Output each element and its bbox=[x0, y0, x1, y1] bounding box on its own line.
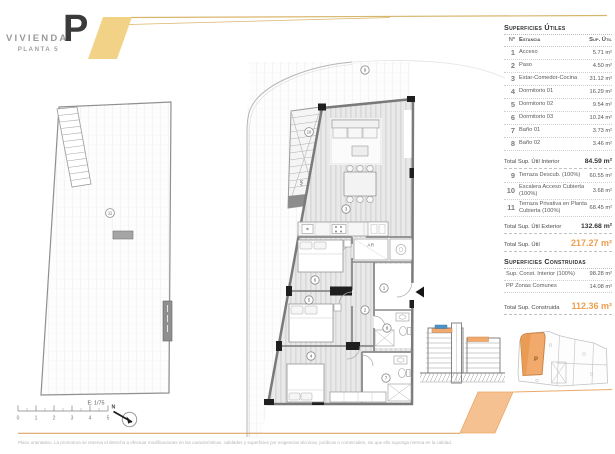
col-room: Estancia bbox=[519, 37, 589, 44]
header: VIVIENDA PLANTA 5 bbox=[6, 33, 59, 53]
scale-tick-label: 4 bbox=[89, 416, 92, 422]
room-marker: 9 bbox=[361, 66, 369, 74]
table-row: 3Estar-Comedor-Cocina31.12 m² bbox=[504, 73, 612, 86]
svg-text:8: 8 bbox=[386, 326, 389, 331]
svg-text:5: 5 bbox=[308, 298, 311, 303]
entrance-arrow bbox=[416, 287, 425, 298]
svg-text:2: 2 bbox=[364, 308, 367, 313]
wardrobe-label: AR bbox=[299, 179, 304, 186]
key-plan: P bbox=[518, 332, 608, 387]
floorplan-sheet: AR bbox=[0, 0, 615, 454]
total-row: Total Sup. Útil 217.27 m² bbox=[504, 235, 612, 252]
scale-tick-label: 3 bbox=[71, 416, 74, 422]
built-surfaces-title: Superficies Construidas bbox=[504, 257, 612, 269]
room-marker: 4 bbox=[307, 352, 315, 360]
room-marker: 6 bbox=[311, 276, 319, 284]
room-marker: 3 bbox=[342, 205, 350, 213]
floor-label: PLANTA 5 bbox=[6, 46, 59, 53]
total-built-value: 112.36 m² bbox=[571, 301, 612, 311]
unit-letter: P bbox=[63, 10, 88, 48]
total-interior-row: Total Sup. Útil Interior 84.59 m² bbox=[504, 155, 612, 169]
bed-dorm3 bbox=[298, 240, 351, 272]
col-num: Nº bbox=[504, 37, 519, 44]
room-marker: 5 bbox=[305, 296, 313, 304]
north-label: N bbox=[112, 405, 116, 411]
table-row: PP Zonas Comunes14.08 m² bbox=[504, 281, 612, 293]
total-built-row: Total Sup. Construida 112.36 m² bbox=[504, 298, 612, 315]
col-area: Sup. Útil bbox=[589, 37, 612, 44]
table-row: 10Escalera Acceso Cubierta (100%)3.68 m² bbox=[504, 183, 612, 200]
kitchen bbox=[298, 222, 388, 236]
svg-text:9: 9 bbox=[364, 68, 367, 73]
roof-side-label-bar bbox=[163, 301, 172, 341]
total-built-label: Total Sup. Construida bbox=[504, 305, 559, 311]
surfaces-panel: Superficies Útiles Nº Estancia Sup. Útil… bbox=[504, 23, 612, 316]
total-exterior-label: Total Sup. Útil Exterior bbox=[504, 224, 561, 230]
table-row: 8Baño 023.46 m² bbox=[504, 138, 612, 151]
section-roof-element bbox=[435, 325, 447, 329]
table-row: Sup. Const. Interior (100%)98.28 m² bbox=[504, 269, 612, 281]
brand-title: VIVIENDA bbox=[6, 33, 59, 44]
table-row: 2Paso4.50 m² bbox=[504, 60, 612, 73]
room-marker: 2 bbox=[361, 306, 369, 314]
room-marker: 10 bbox=[305, 128, 314, 137]
bed-dorm2 bbox=[289, 304, 341, 342]
total-value: 217.27 m² bbox=[571, 238, 612, 248]
total-exterior-row: Total Sup. Útil Exterior 132.68 m² bbox=[504, 220, 612, 234]
svg-text:10: 10 bbox=[307, 130, 312, 135]
svg-text:3: 3 bbox=[345, 207, 348, 212]
table-header: Nº Estancia Sup. Útil bbox=[504, 35, 612, 47]
scale-tick-label: 5 bbox=[107, 416, 110, 422]
svg-text:11: 11 bbox=[108, 211, 113, 216]
svg-text:4: 4 bbox=[310, 354, 313, 359]
scale-tick-label: 0 bbox=[17, 416, 20, 422]
building-section bbox=[420, 323, 505, 383]
sofa bbox=[331, 119, 381, 164]
table-row: 4Dormitorio 0116.29 m² bbox=[504, 86, 612, 99]
total-label: Total Sup. Útil bbox=[504, 242, 540, 248]
scale-tick-label: 1 bbox=[35, 416, 38, 422]
scale-label: E: 1/75 bbox=[87, 401, 104, 407]
roof-plan bbox=[41, 102, 172, 395]
table-row: 5Dormitorio 029.54 m² bbox=[504, 99, 612, 112]
svg-text:1: 1 bbox=[383, 286, 386, 291]
room-marker: 8 bbox=[383, 324, 391, 332]
roof-hatch-access bbox=[113, 231, 133, 239]
scale-tick-label: 2 bbox=[53, 416, 56, 422]
north-arrow: N bbox=[112, 405, 137, 427]
section-highlight-floor bbox=[468, 337, 489, 342]
table-row: 7Baño 013.73 m² bbox=[504, 125, 612, 138]
footer-disclaimer: Plano orientativo. La promotora se reser… bbox=[18, 440, 598, 445]
total-exterior-value: 132.68 m² bbox=[581, 223, 612, 230]
svg-text:6: 6 bbox=[314, 278, 317, 283]
dining-table bbox=[344, 165, 376, 202]
table-row: 1Acceso5.71 m² bbox=[504, 47, 612, 60]
total-interior-value: 84.59 m² bbox=[585, 158, 612, 165]
svg-text:7: 7 bbox=[385, 376, 388, 381]
wardrobe: AR bbox=[354, 239, 412, 260]
key-plan-unit-label: P bbox=[534, 357, 538, 363]
table-row: 9Terraza Descub. (100%)60.55 m² bbox=[504, 170, 612, 183]
room-marker: 7 bbox=[382, 374, 390, 382]
total-interior-label: Total Sup. Útil Interior bbox=[504, 159, 559, 165]
room-marker: 1 bbox=[380, 284, 388, 292]
wardrobe-label: AR bbox=[367, 243, 375, 248]
section-highlight-floor bbox=[432, 329, 452, 333]
room-marker: 11 bbox=[106, 209, 115, 218]
scale-bar: 0 1 2 3 4 5 E: 1/75 bbox=[17, 401, 110, 422]
surfaces-title: Superficies Útiles bbox=[504, 23, 612, 35]
table-row: 11Terraza Privativa en Planta Cubierta (… bbox=[504, 200, 612, 217]
table-row: 6Dormitorio 0310.24 m² bbox=[504, 112, 612, 125]
